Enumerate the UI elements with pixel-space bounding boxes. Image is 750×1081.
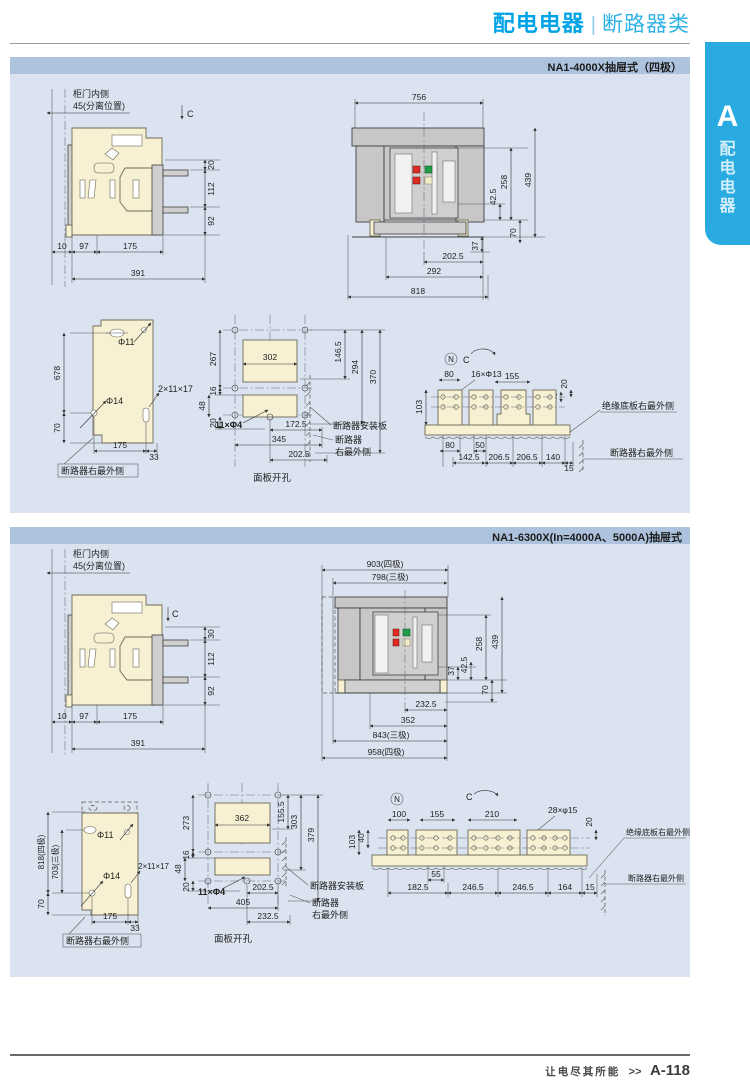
dim: 20	[206, 160, 216, 170]
footer-page-number: A-118	[650, 1062, 690, 1079]
slot-label: 2×11×17	[138, 862, 170, 871]
dim: 267	[208, 352, 218, 366]
p1-cutout-note3: 右最外侧	[335, 446, 371, 457]
dim: 142.5	[458, 452, 480, 462]
rotation-c-label: C	[466, 792, 473, 802]
p2-cutout-note3: 右最外侧	[312, 909, 348, 920]
p1-side-door-label: 柜门内侧	[73, 88, 109, 99]
p1-term-blocks	[425, 390, 570, 439]
dim: 40	[356, 833, 366, 843]
dim: 97	[79, 711, 89, 721]
dim: 50	[475, 440, 485, 450]
header-separator: |	[591, 14, 596, 36]
indicator-cream	[425, 177, 432, 184]
dim: 30	[206, 629, 216, 639]
p1-front-breaker-body	[352, 112, 484, 252]
dim: 258	[499, 175, 509, 189]
chapter-tab: A 配电电器	[705, 42, 750, 245]
dim: 439	[523, 173, 533, 187]
p2-term-bottom-dims: 55 182.5 246.5 246.5 164 15	[388, 866, 597, 897]
dim: 246.5	[512, 882, 534, 892]
dim: 103	[414, 400, 424, 414]
dim: 112	[206, 652, 216, 666]
p2-term-note2: 断路器右最外侧	[628, 873, 684, 883]
p2-front-view: 903(四极) 798(三极)	[295, 552, 655, 797]
p2-cutout-note2: 断路器	[312, 897, 339, 908]
dim: 92	[206, 686, 216, 696]
p2-term-blocks	[372, 830, 590, 870]
p2-terminal-view: N C 100 155 210 28×φ15 20 103 40	[350, 782, 690, 932]
chapter-label: 配电电器	[719, 140, 737, 216]
dim: 958(四极)	[368, 747, 405, 757]
dim: 439	[490, 635, 500, 649]
rotation-c-label: C	[463, 355, 470, 365]
dim: 164	[558, 882, 572, 892]
dim: 258	[474, 637, 484, 651]
page-footer: 让电尽其所能 >> A-118	[0, 1062, 690, 1080]
dim: 172.5	[285, 419, 307, 429]
dim: 155.5	[276, 801, 286, 823]
dim: 42.5	[488, 188, 498, 205]
hole-label: Φ14	[106, 396, 123, 406]
dim: 33	[149, 452, 159, 462]
footer-rule	[10, 1054, 690, 1056]
dim: 175	[113, 440, 127, 450]
p1-cutout-note1: 断路器安装板	[333, 420, 387, 431]
hole-label: Φ11	[118, 337, 135, 347]
dim: 232.5	[257, 911, 279, 921]
p1-side-c-label: C	[187, 109, 194, 119]
p2-front-breaker-body	[322, 590, 447, 710]
indicator-green	[403, 629, 410, 636]
dim: 362	[235, 813, 249, 823]
p1-front-bottom-dims: 202.5 292 818	[348, 235, 488, 300]
dim: 678	[52, 366, 62, 380]
header-brand: 配电电器	[493, 11, 585, 36]
p1-cutout-view: 302 267 16 48 20 146.5 294 370 11×Φ4	[195, 307, 410, 514]
dim: 146.5	[333, 341, 343, 363]
dim: 903(四极)	[367, 559, 404, 569]
p2-side-c-label: C	[172, 609, 179, 619]
p1-term-note2: 断路器右最外侧	[610, 447, 673, 458]
p1-side-view: 柜门内侧 45(分离位置) C	[20, 85, 330, 315]
indicator-red-2	[413, 177, 420, 184]
p1-terminal-view: N C 80 16×Φ13 155 40 20 103	[415, 322, 695, 507]
dim: 155	[430, 809, 444, 819]
dim: 818	[411, 286, 425, 296]
dim: 405	[236, 897, 250, 907]
dim: 175	[123, 711, 137, 721]
dim: 379	[306, 828, 316, 842]
dim: 798(三极)	[372, 572, 409, 582]
dim: 10	[57, 241, 67, 251]
dim: 202.5	[442, 251, 464, 261]
p2-term-note1: 绝缘底板右最外侧	[626, 827, 690, 837]
dim: 232.5	[415, 699, 437, 709]
dim: 70	[52, 423, 62, 433]
p2-plate-note: 断路器右最外侧	[66, 935, 129, 946]
p2-cutout-holes-label: 11×Φ4	[198, 887, 225, 897]
dim: 391	[131, 738, 145, 748]
dim: 16×Φ13	[471, 369, 502, 379]
p1-side-breaker-body	[66, 128, 188, 237]
dim: 302	[263, 352, 277, 362]
p1-cutout-bottom-dims: 172.5 345 202.5	[235, 419, 327, 463]
dim: 70	[36, 899, 46, 909]
dim: 206.5	[516, 452, 538, 462]
dim: 391	[131, 268, 145, 278]
dim: 15	[585, 882, 595, 892]
dim: 10	[57, 711, 67, 721]
panel-na1-4000x: NA1-4000X抽屉式（四极） 柜门内侧 45(分离位置) C	[10, 57, 690, 513]
p2-front-right-dims: 37 42.5 258 439 70	[438, 597, 507, 702]
chapter-letter: A	[705, 100, 750, 134]
phase-n-label: N	[448, 355, 454, 364]
dim: 370	[368, 370, 378, 384]
p2-cutout-caption: 面板开孔	[214, 933, 253, 945]
dim: 175	[103, 911, 117, 921]
dim: 100	[392, 809, 406, 819]
phase-n-label: N	[394, 795, 400, 804]
p2-side-door-label: 柜门内侧	[73, 548, 109, 559]
dim: 206.5	[488, 452, 510, 462]
dim: 294	[350, 360, 360, 374]
dim: 345	[272, 434, 286, 444]
indicator-red-1	[393, 629, 399, 636]
dim: 182.5	[407, 882, 429, 892]
p2-side-right-dims: 30 112 92	[164, 627, 220, 705]
cutout-opening-2	[215, 858, 270, 875]
dim: 70	[508, 228, 518, 238]
footer-slogan: 让电尽其所能	[545, 1066, 620, 1078]
dim: 352	[401, 715, 415, 725]
header-rule	[10, 43, 690, 44]
dim: 70	[480, 685, 490, 695]
p1-cutout-caption: 面板开孔	[253, 472, 292, 484]
dim: 703(三极)	[50, 844, 60, 879]
dim: 42.5	[459, 656, 469, 673]
p1-front-view: 756 42.5	[330, 85, 680, 320]
p1-plate-note: 断路器右最外侧	[61, 465, 124, 476]
dim: 37	[446, 666, 456, 676]
dim: 843(三极)	[373, 730, 410, 740]
p2-side-view: 柜门内侧 45(分离位置) C	[20, 545, 330, 785]
dim: 20	[181, 882, 191, 892]
dim: 33	[130, 923, 140, 933]
panel2-title: NA1-6300X(In=4000A、5000A)抽屉式	[10, 527, 690, 544]
dim: 756	[412, 92, 426, 102]
header-section: 断路器类	[602, 13, 690, 36]
p1-side-bottom-dims: 10 97 175 391	[52, 235, 205, 283]
dim: 202.5	[252, 882, 274, 892]
dim: 175	[123, 241, 137, 251]
dim: 15	[564, 463, 574, 473]
p2-side-breaker-body	[66, 595, 188, 707]
dim: 155	[505, 371, 519, 381]
dim: 20	[584, 817, 594, 827]
dim: 292	[427, 266, 441, 276]
p1-side-pos-label: 45(分离位置)	[73, 100, 125, 111]
hole-label: Φ14	[103, 871, 120, 881]
dim: 818(四极)	[36, 834, 46, 869]
dim: 48	[173, 864, 183, 874]
p1-term-bottom-dims: 80 50 142.5 206.5 206.5 140 15	[440, 435, 574, 473]
dim: 202.5	[288, 449, 310, 459]
footer-arrow: >>	[629, 1066, 642, 1078]
page-header: 配电电器|断路器类	[0, 6, 690, 38]
dim: 55	[431, 869, 441, 879]
indicator-red-1	[413, 166, 420, 173]
p2-side-bottom-dims: 10 97 175 391	[52, 705, 205, 753]
dim: 80	[445, 440, 455, 450]
dim: 140	[546, 452, 560, 462]
indicator-green	[425, 166, 432, 173]
indicator-cream	[403, 639, 410, 646]
hole-label: Φ11	[97, 830, 114, 840]
p1-cutout-note2: 断路器	[335, 434, 362, 445]
p2-side-pos-label: 45(分离位置)	[73, 560, 125, 571]
dim: 92	[206, 216, 216, 226]
dim: 97	[79, 241, 89, 251]
dim: 48	[197, 401, 207, 411]
slot-label: 2×11×17	[158, 384, 193, 394]
dim: 28×φ15	[548, 805, 578, 815]
p1-term-note1: 绝缘底板右最外侧	[602, 400, 674, 411]
p1-cutout-holes-label: 11×Φ4	[215, 420, 242, 430]
dim: 20	[559, 379, 569, 389]
dim: 112	[206, 182, 216, 196]
dim: 80	[444, 369, 454, 379]
dim: 16	[209, 386, 218, 395]
panel-na1-6300x: NA1-6300X(In=4000A、5000A)抽屉式 柜门内侧 45(分离位…	[10, 527, 690, 977]
indicator-red-2	[393, 639, 399, 646]
dim: 246.5	[462, 882, 484, 892]
dim: 273	[181, 816, 191, 830]
dim: 16	[182, 850, 191, 859]
panel1-title: NA1-4000X抽屉式（四极）	[10, 57, 690, 74]
cutout-opening-1	[215, 803, 270, 843]
dim: 210	[485, 809, 499, 819]
dim: 37	[470, 241, 480, 251]
p1-plate-view: Φ11 Φ14 2×11×17 678 70 175 33 断路器右最外侧	[30, 312, 220, 512]
dim: 303	[289, 815, 299, 829]
